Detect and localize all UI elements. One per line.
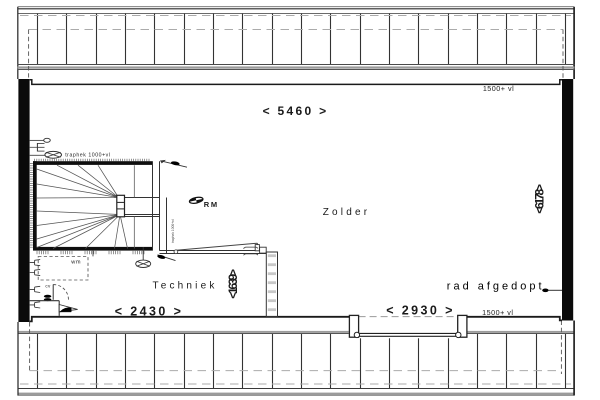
svg-text:wm: wm xyxy=(70,260,81,266)
svg-text:RM: RM xyxy=(204,200,219,209)
svg-text:1500+ vl: 1500+ vl xyxy=(483,84,514,93)
svg-text:< 5460 >: < 5460 > xyxy=(263,104,329,118)
svg-text:Zolder: Zolder xyxy=(323,207,371,218)
svg-text:< 2430 >: < 2430 > xyxy=(115,305,184,319)
svg-text:< 2930 >: < 2930 > xyxy=(386,303,455,317)
svg-text:rad afgedopt: rad afgedopt xyxy=(447,281,545,293)
svg-text:1500+ vl: 1500+ vl xyxy=(482,308,513,317)
svg-text:cv: cv xyxy=(45,283,51,288)
svg-text:traphek 1000+vl: traphek 1000+vl xyxy=(65,153,110,159)
svg-text:traphek 1000+vl: traphek 1000+vl xyxy=(171,219,175,243)
svg-text:Techniek: Techniek xyxy=(153,280,218,291)
svg-text:<6178>: <6178> xyxy=(533,184,547,214)
svg-text:<1639>: <1639> xyxy=(226,269,240,299)
